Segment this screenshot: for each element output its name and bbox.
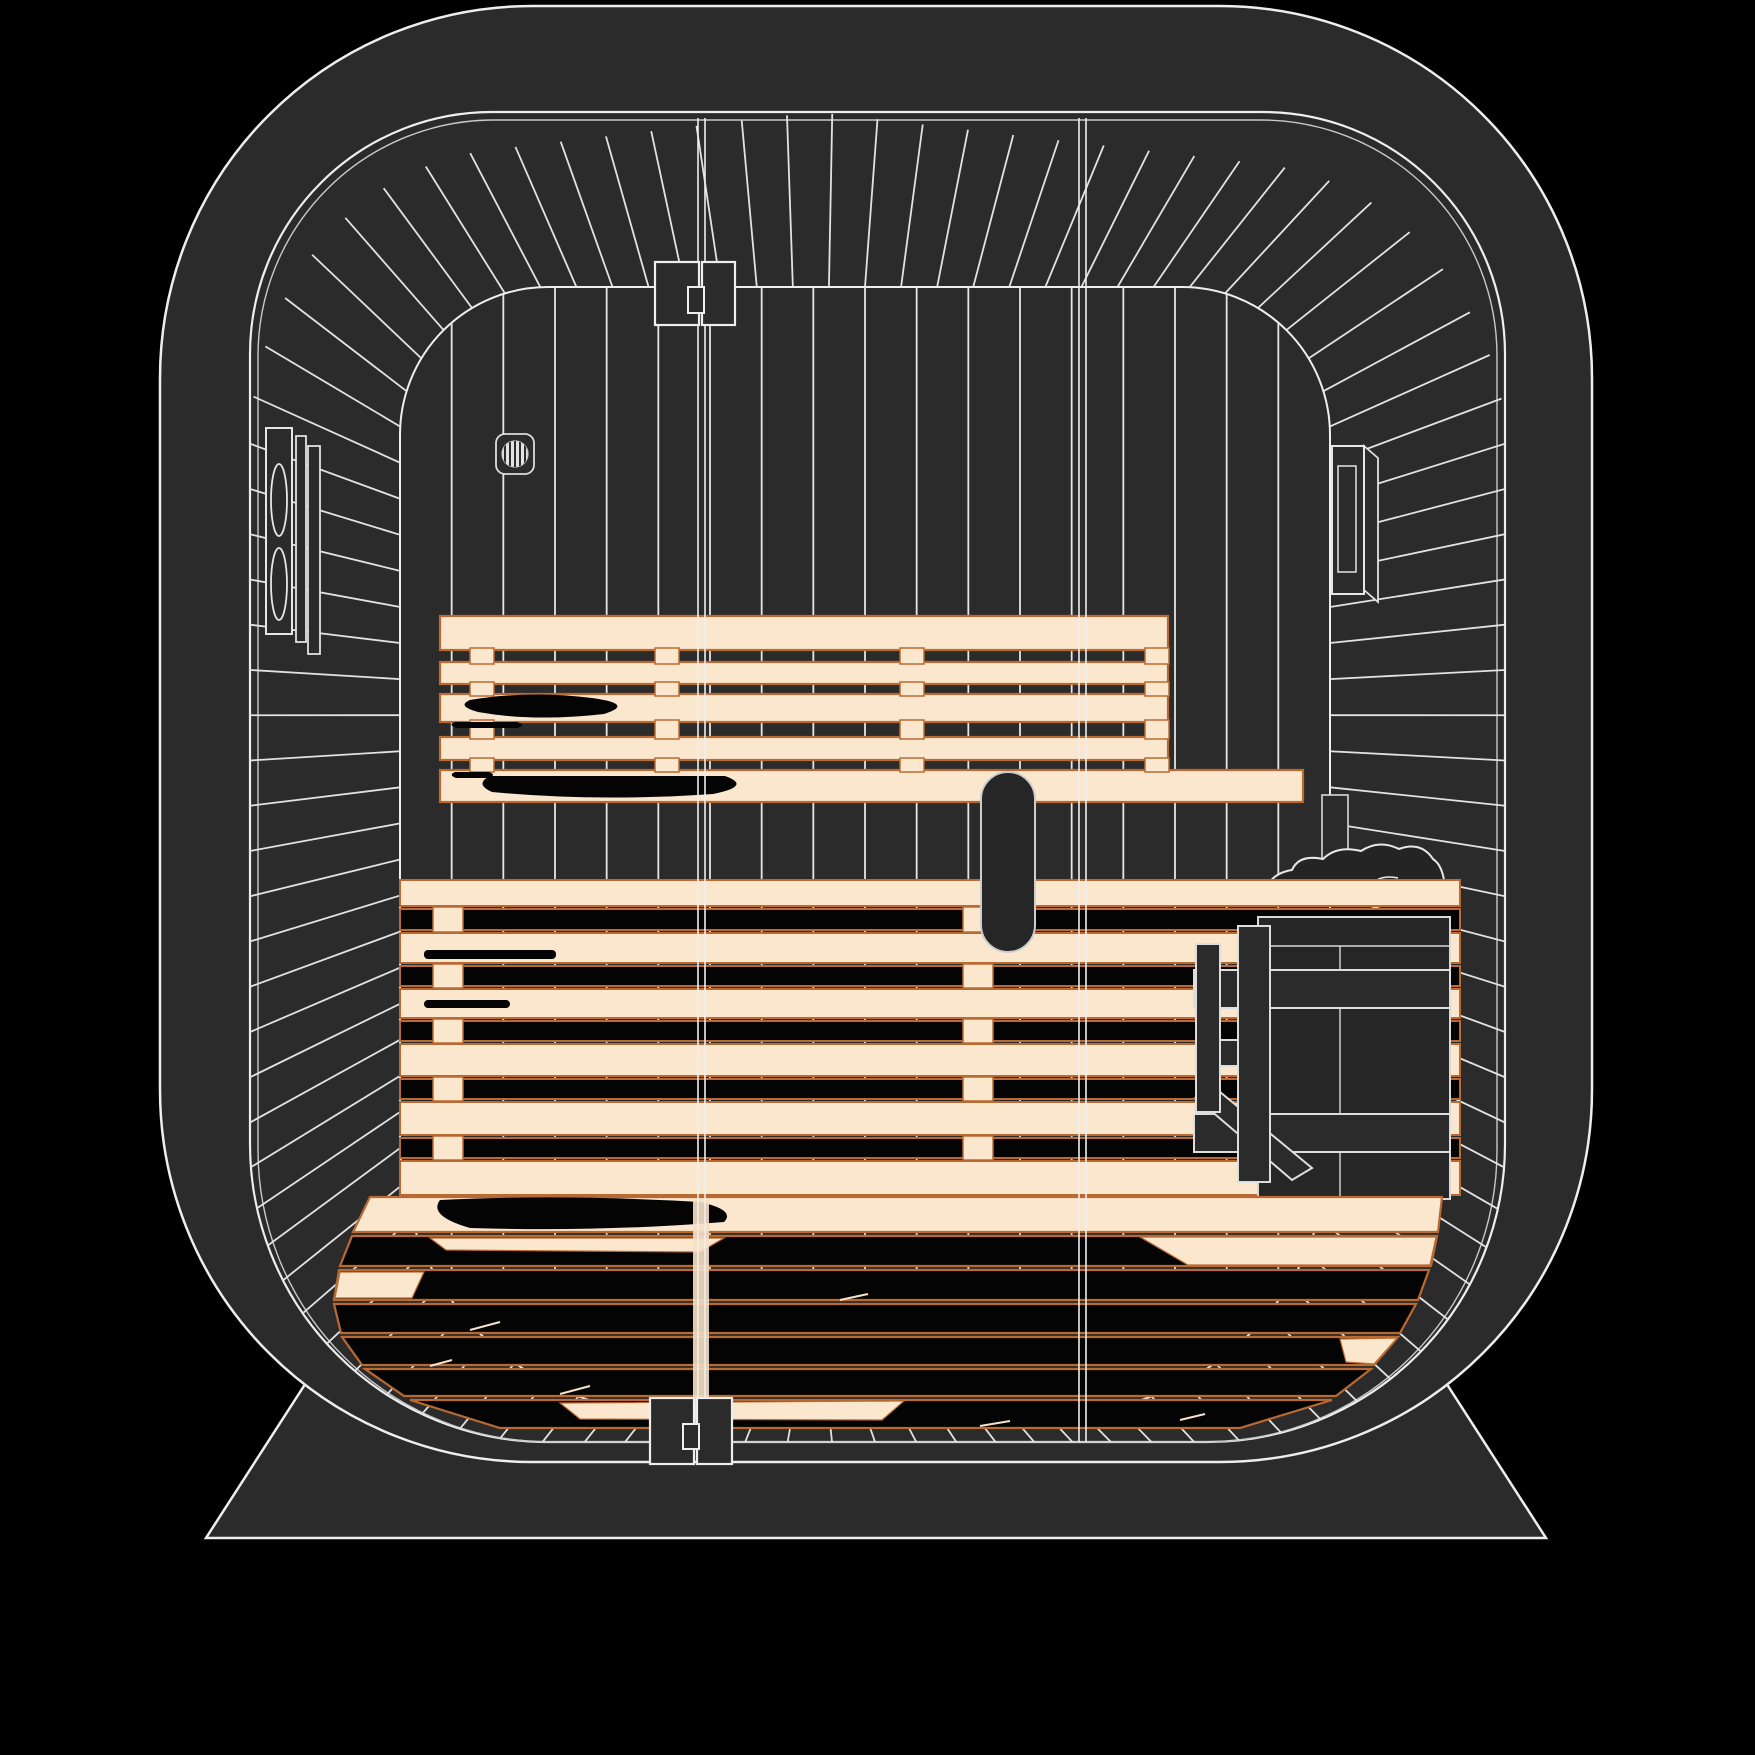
wood-grain — [451, 722, 522, 728]
wood-grain — [452, 772, 493, 778]
speaker — [266, 428, 320, 654]
floor-boards — [334, 1197, 1442, 1435]
sauna-interior-illustration — [0, 0, 1755, 1755]
heater-guard-post — [1196, 944, 1220, 1112]
vent-grille — [496, 434, 534, 474]
door-hinge-top — [655, 262, 735, 325]
wood-grain — [437, 1197, 727, 1229]
illustration-stage — [0, 0, 1755, 1755]
door-handle — [981, 772, 1035, 952]
heater-guard-rail — [1194, 970, 1450, 1008]
heater-guard-post — [1238, 926, 1270, 1182]
wall-light-fixture — [1332, 446, 1378, 602]
door-hinge-bottom — [650, 1398, 732, 1464]
